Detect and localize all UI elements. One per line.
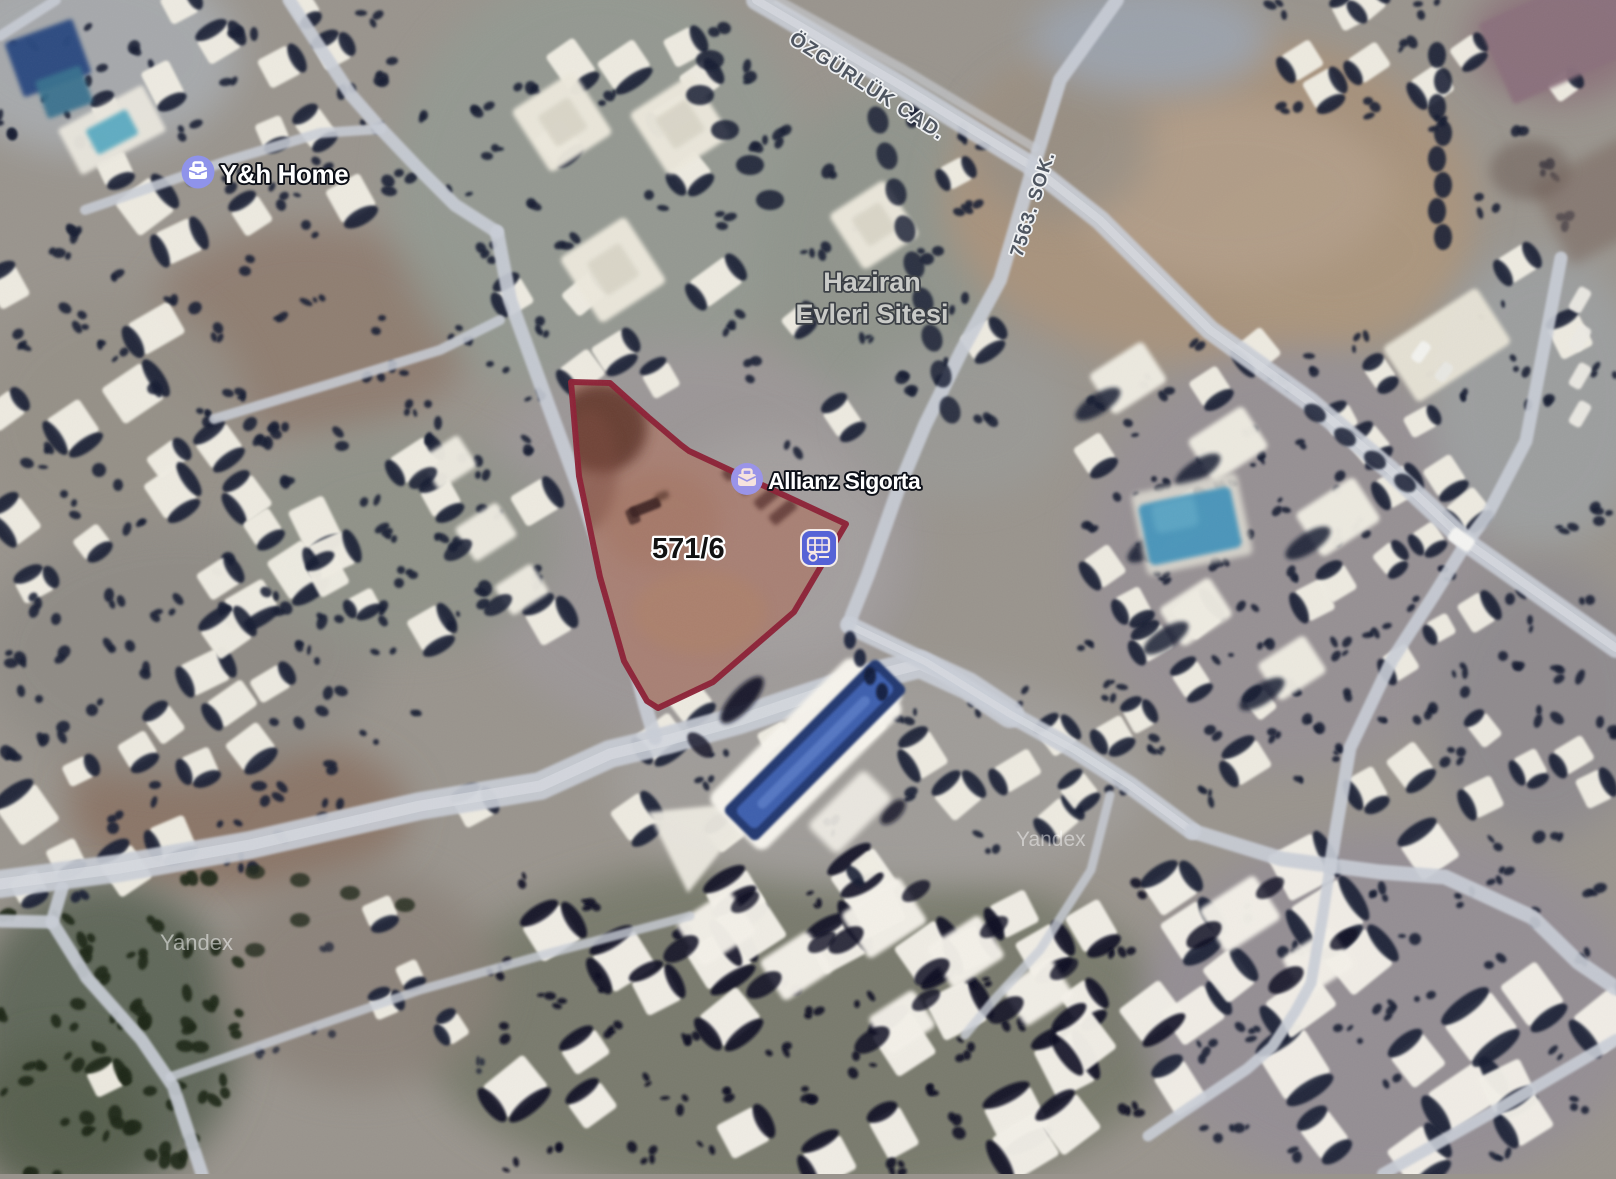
svg-text:Y&h Home: Y&h Home (220, 159, 348, 189)
svg-text:Haziran: Haziran (823, 267, 921, 297)
svg-text:Evleri Sitesi: Evleri Sitesi (795, 299, 948, 329)
svg-text:Yandex: Yandex (160, 930, 233, 955)
svg-text:571/6: 571/6 (652, 533, 725, 565)
svg-text:Allianz Sigorta: Allianz Sigorta (768, 468, 921, 494)
svg-text:Yandex: Yandex (1016, 828, 1086, 851)
